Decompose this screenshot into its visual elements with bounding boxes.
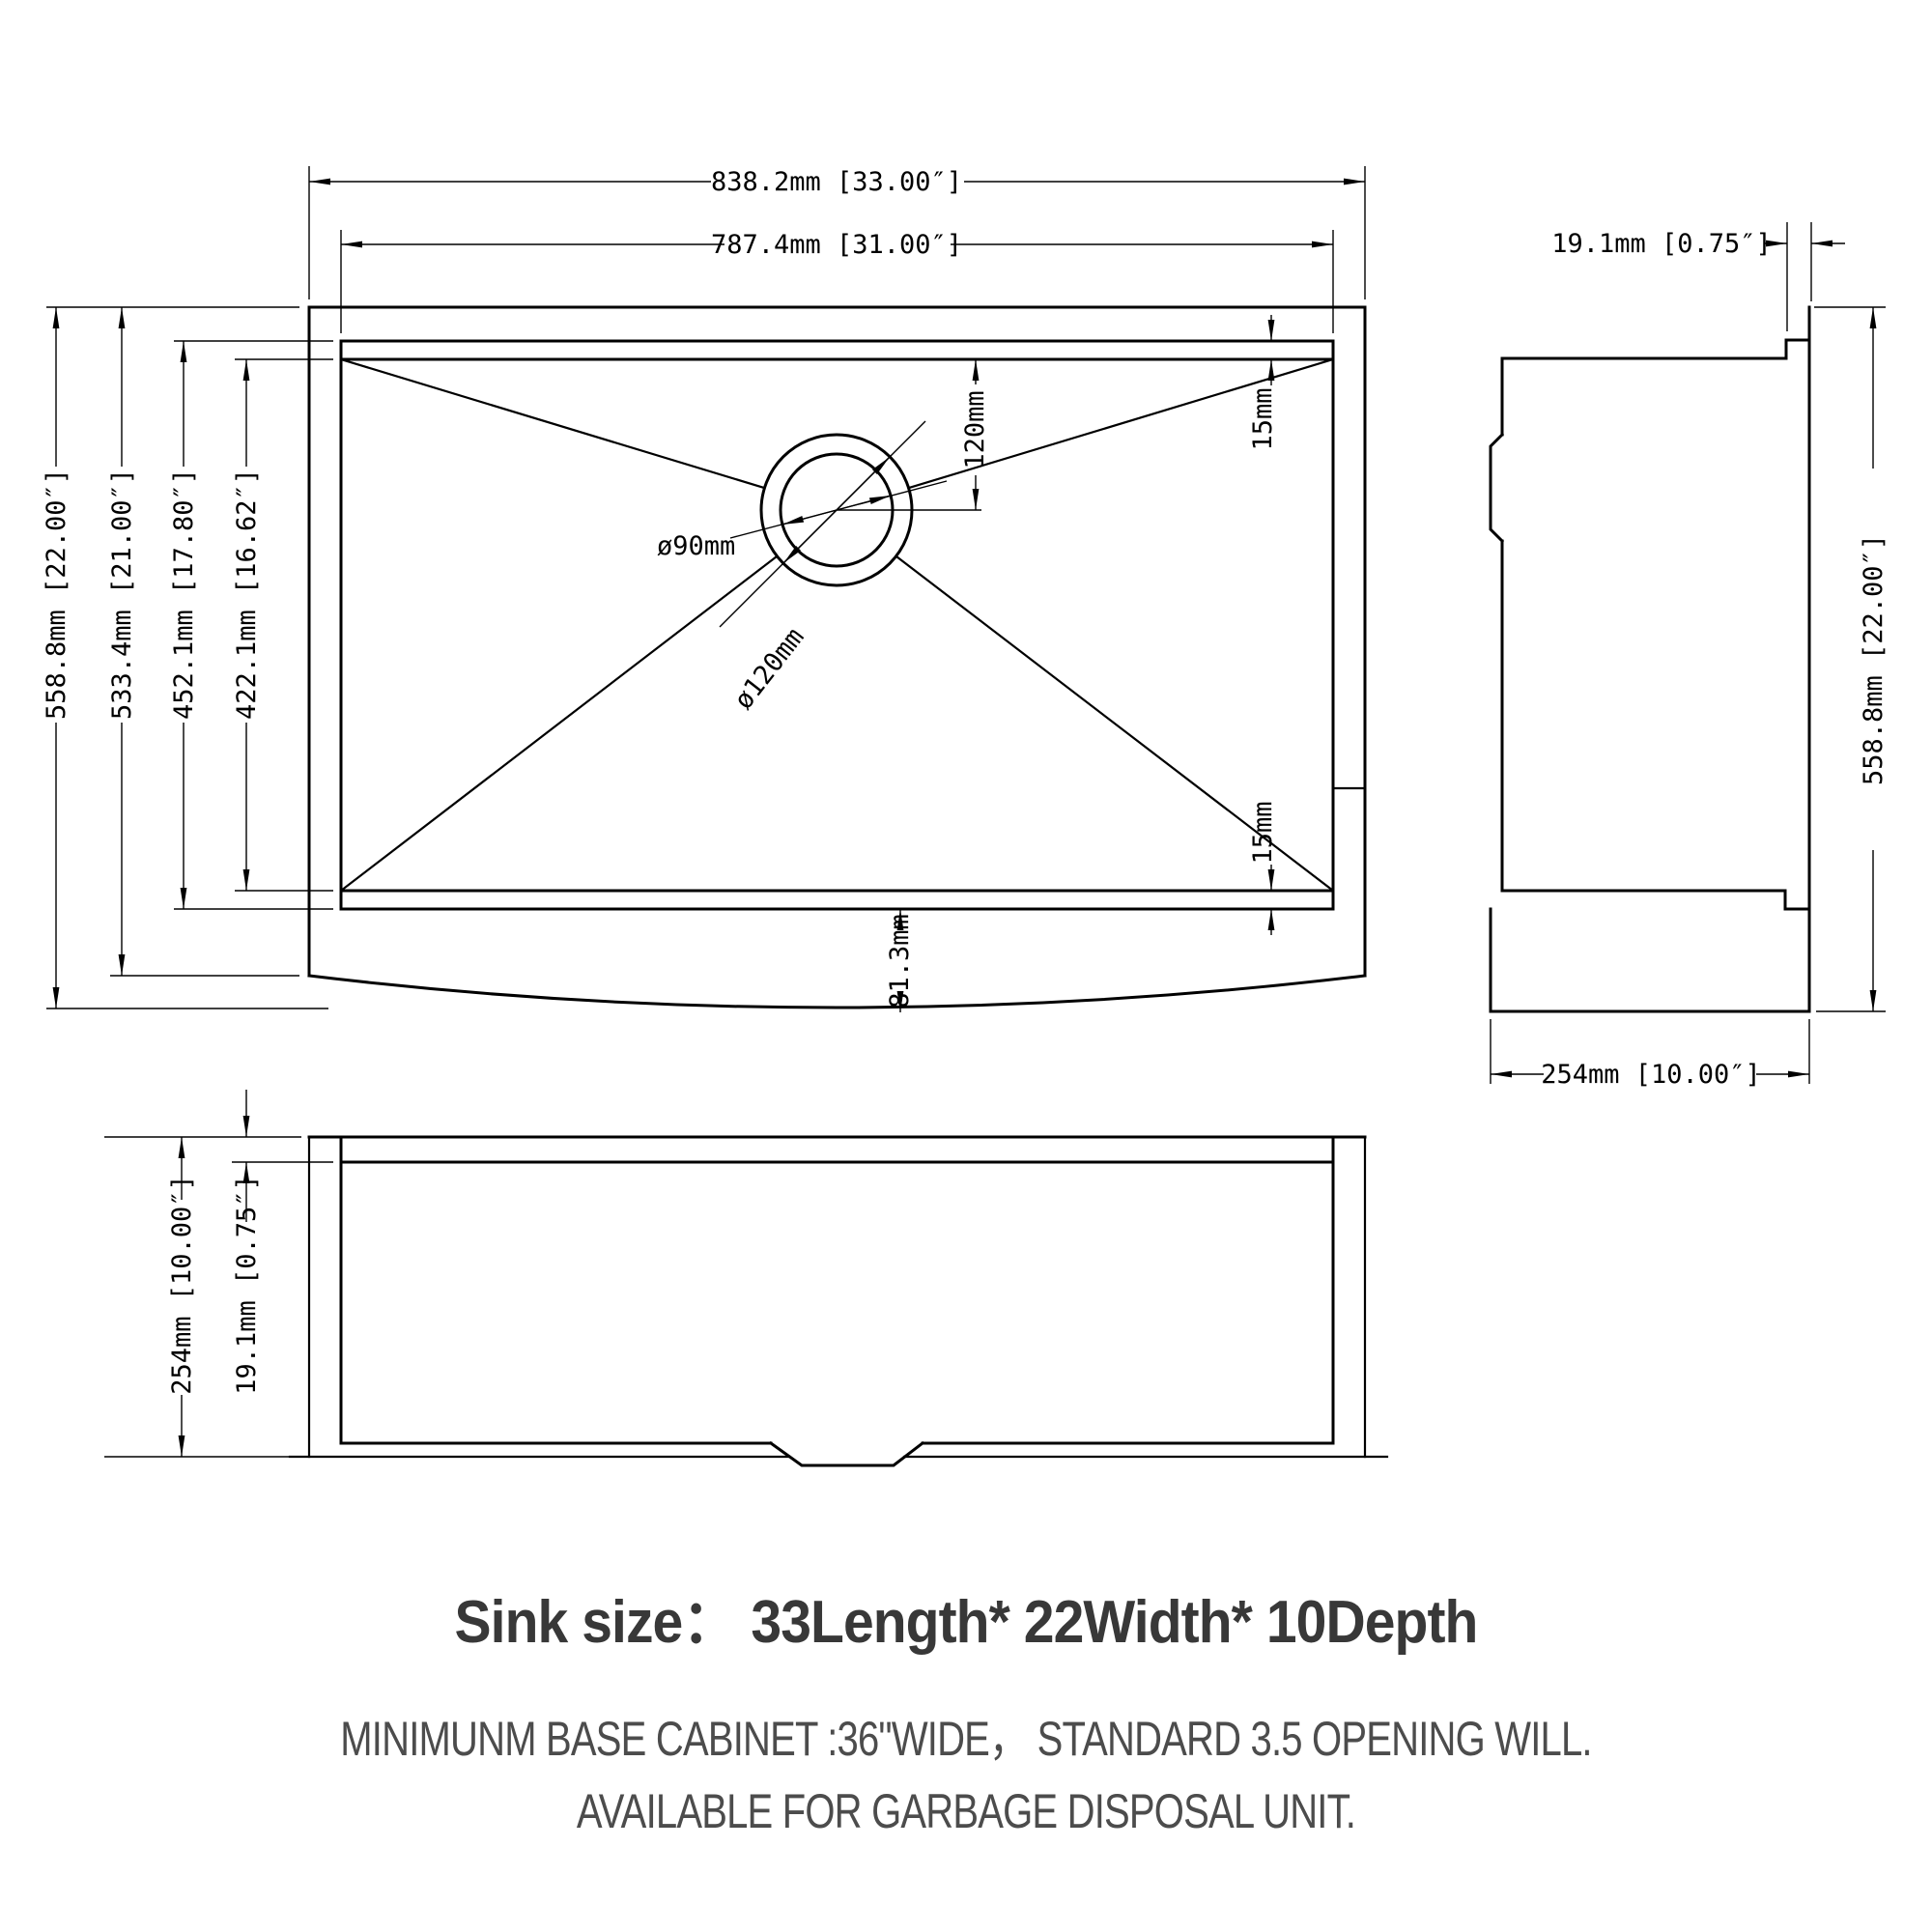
side-dimensions: 19.1mm [0.75″] 558.8mm [22.00″] 254mm [1… (1491, 222, 1889, 1090)
dim-drain-outer-diameter: ø120mm (728, 622, 810, 715)
bowl-diagonal-tl (341, 359, 764, 488)
plan-dimensions: 838.2mm [33.00″] 787.4mm [31.00″] 558.8m… (42, 166, 1365, 1012)
sink-spec-drawing: 838.2mm [33.00″] 787.4mm [31.00″] 558.8m… (0, 0, 1932, 1932)
plan-view (309, 307, 1365, 1008)
front-dimensions: 254mm [10.00″] 19.1mm [0.75″] (104, 1090, 333, 1457)
dim-apron-thickness: 19.1mm [0.75″] (1551, 229, 1772, 259)
dim-drain-inner-diameter: ø90mm (657, 531, 735, 561)
front-drain-boss (771, 1443, 923, 1465)
note-line-1: MINIMUNM BASE CABINET :36"WIDE， STANDARD… (193, 1700, 1739, 1770)
dim-rim-top: 15mm (1248, 387, 1278, 450)
bowl-rim-rect (341, 341, 1333, 909)
front-view (290, 1137, 1387, 1465)
dim-front-rim-thickness: 19.1mm [0.75″] (232, 1175, 262, 1395)
bowl-diagonal-bl (341, 556, 777, 891)
dim-body-depth: 533.4mm [21.00″] (107, 469, 137, 720)
footer: Sink size： 33Length* 22Width* 10Depth MI… (0, 1573, 1932, 1839)
dim-side-depth: 558.8mm [22.00″] (1859, 534, 1889, 785)
note-line-2: AVAILABLE FOR GARBAGE DISPOSAL UNIT. (193, 1783, 1739, 1839)
dim-inner-width: 787.4mm [31.00″] (711, 230, 962, 260)
sink-size-title: Sink size： 33Length* 22Width* 10Depth (77, 1573, 1855, 1660)
dim-bowl-outer-depth: 452.1mm [17.80″] (169, 469, 199, 720)
side-mount-notch (1491, 435, 1502, 541)
dim-overall-width: 838.2mm [33.00″] (711, 167, 962, 197)
dim-drain-offset: 120mm (960, 390, 990, 469)
dim-apron-bulge: 81.3mm (885, 914, 915, 1009)
dim-bowl-inner-depth: 422.1mm [16.62″] (232, 469, 262, 720)
side-view (1491, 307, 1809, 1011)
dim-overall-depth: 558.8mm [22.00″] (42, 469, 71, 720)
dim-rim-bottom: 15mm (1248, 801, 1278, 864)
dim-side-height: 254mm [10.00″] (1541, 1060, 1761, 1090)
dim-front-height: 254mm [10.00″] (167, 1175, 197, 1395)
apron-front-curve (309, 976, 1365, 1008)
